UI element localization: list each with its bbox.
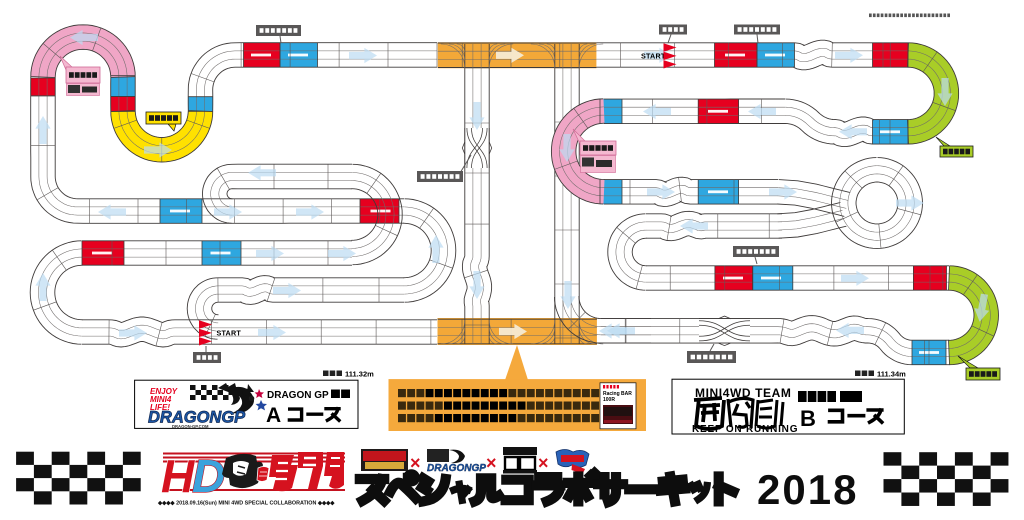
svg-text:×: × — [538, 453, 549, 473]
svg-text:DRAGON GP: DRAGON GP — [267, 390, 329, 401]
svg-text:◆◆◆◆ 2018.09.16(Sun) MINI 4WD: ◆◆◆◆ 2018.09.16(Sun) MINI 4WD SPECIAL CO… — [157, 501, 334, 507]
svg-text:DRAGONGP: DRAGONGP — [427, 463, 486, 474]
svg-text:DRAGON-GP.COM: DRAGON-GP.COM — [172, 424, 209, 429]
svg-text:START: START — [217, 329, 242, 338]
svg-text:111.32m: 111.32m — [345, 370, 374, 379]
svg-text:100R: 100R — [603, 397, 615, 403]
svg-text:A: A — [266, 404, 281, 427]
svg-text:2018: 2018 — [757, 466, 858, 513]
svg-text:111.34m: 111.34m — [877, 370, 906, 379]
svg-text:KEEP ON RUNNING: KEEP ON RUNNING — [692, 424, 798, 435]
svg-text:D: D — [192, 450, 225, 502]
svg-text:START: START — [641, 52, 666, 61]
svg-text:×: × — [486, 453, 497, 473]
svg-text:B: B — [800, 406, 816, 431]
svg-text:H: H — [161, 450, 195, 502]
